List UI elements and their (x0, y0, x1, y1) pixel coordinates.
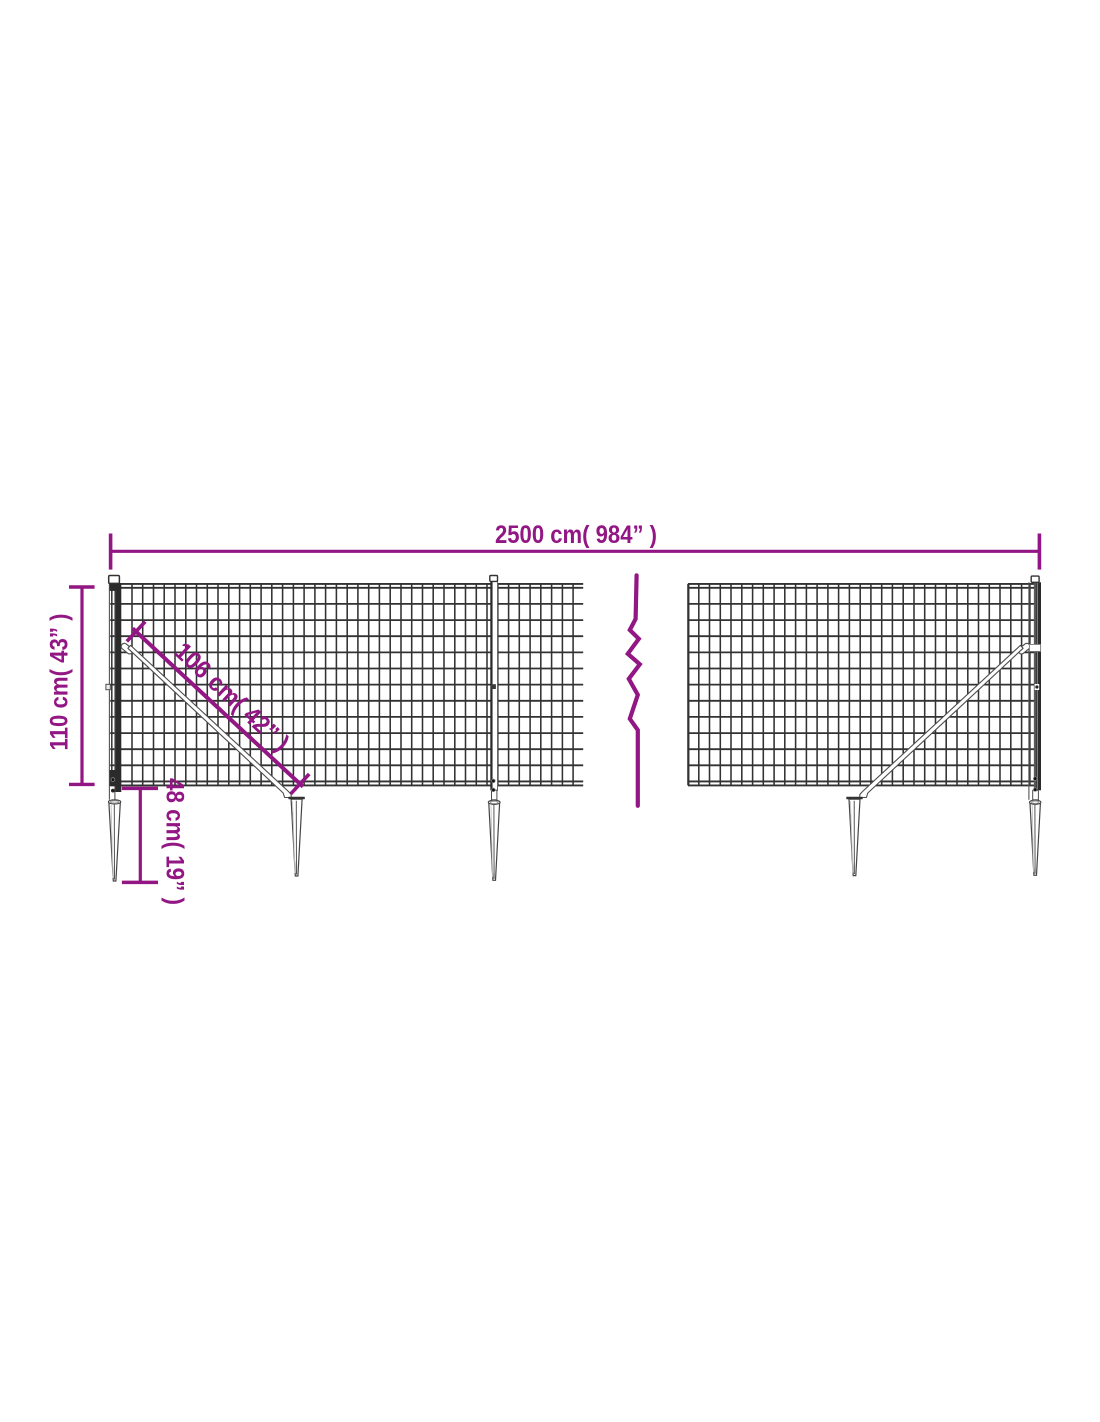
svg-text:48 cm( 19” ): 48 cm( 19” ) (161, 778, 189, 905)
svg-text:2500 cm( 984” ): 2500 cm( 984” ) (495, 521, 657, 549)
svg-text:110 cm( 43” ): 110 cm( 43” ) (46, 614, 74, 751)
